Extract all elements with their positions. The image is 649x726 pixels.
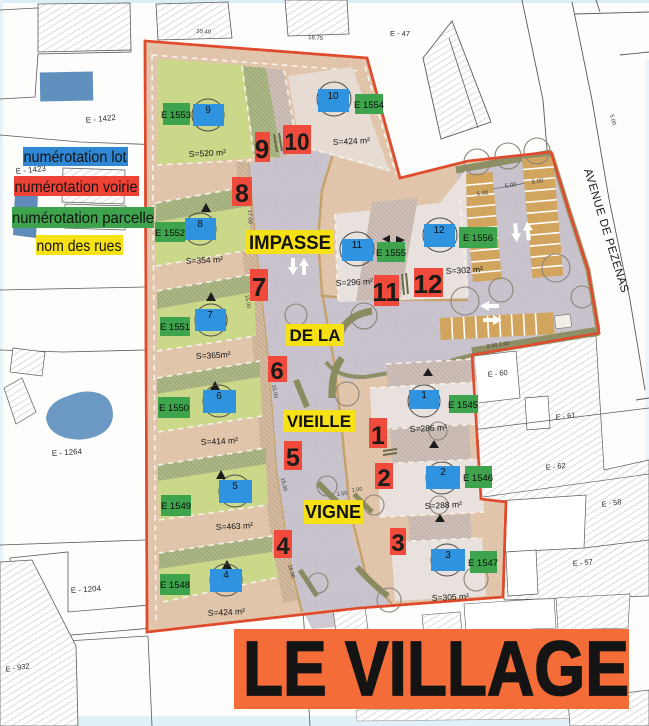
svg-text:5: 5 (286, 444, 300, 472)
svg-text:numérotation voirie: numérotation voirie (15, 179, 138, 196)
svg-text:4: 4 (276, 533, 290, 560)
svg-text:4: 4 (223, 570, 229, 581)
svg-text:18.75: 18.75 (308, 35, 324, 42)
svg-text:DE LA: DE LA (290, 326, 341, 345)
svg-text:3: 3 (391, 530, 404, 557)
svg-text:S=414 m²: S=414 m² (201, 435, 239, 447)
svg-text:S=286 m²: S=286 m² (410, 422, 448, 434)
svg-text:numérotation parcelle: numérotation parcelle (12, 210, 154, 227)
svg-text:S=424 m²: S=424 m² (208, 606, 246, 618)
svg-text:E 1549: E 1549 (161, 501, 191, 512)
svg-text:nom des rues: nom des rues (37, 238, 122, 255)
svg-text:11: 11 (352, 240, 363, 251)
svg-text:17.00: 17.00 (246, 210, 253, 224)
svg-text:2: 2 (440, 467, 446, 478)
svg-text:S=520 m²: S=520 m² (189, 147, 227, 159)
svg-text:6: 6 (216, 391, 222, 402)
svg-text:S=354 m²: S=354 m² (186, 254, 224, 266)
svg-text:8: 8 (235, 180, 249, 208)
svg-text:E 1554: E 1554 (354, 100, 384, 111)
svg-text:S=302 m²: S=302 m² (446, 264, 484, 276)
svg-text:IMPASSE: IMPASSE (249, 233, 331, 254)
svg-text:E 1547: E 1547 (468, 558, 498, 569)
svg-text:S=288 m²: S=288 m² (425, 499, 463, 511)
svg-text:E 1548: E 1548 (160, 580, 190, 591)
svg-text:10: 10 (285, 129, 310, 156)
svg-text:E 1545: E 1545 (448, 400, 478, 411)
svg-text:numérotation lot: numérotation lot (24, 149, 127, 166)
svg-text:12: 12 (414, 269, 443, 299)
svg-text:7: 7 (207, 310, 213, 321)
svg-text:E 1553: E 1553 (161, 110, 191, 121)
svg-text:E - 47: E - 47 (390, 29, 410, 38)
svg-text:S=463 m²: S=463 m² (216, 520, 254, 532)
svg-text:1: 1 (371, 422, 385, 450)
svg-text:5: 5 (232, 481, 238, 492)
svg-text:E - 57: E - 57 (572, 557, 593, 568)
svg-text:3: 3 (445, 550, 451, 561)
svg-text:S=305 m²: S=305 m² (432, 591, 470, 603)
svg-text:E 1551: E 1551 (160, 322, 190, 333)
svg-text:S=296 m²: S=296 m² (336, 276, 374, 288)
svg-text:1: 1 (421, 390, 427, 401)
svg-text:E 1546: E 1546 (463, 473, 493, 484)
svg-text:9: 9 (205, 105, 211, 116)
svg-text:8: 8 (197, 219, 203, 230)
svg-text:9: 9 (255, 134, 269, 164)
svg-text:S=365m²: S=365m² (196, 349, 231, 361)
svg-text:2: 2 (377, 465, 390, 492)
svg-text:E 1555: E 1555 (376, 248, 406, 259)
svg-text:7: 7 (252, 272, 266, 302)
svg-text:E 1556: E 1556 (463, 233, 493, 244)
svg-text:10: 10 (327, 91, 339, 102)
svg-text:12: 12 (433, 225, 445, 236)
svg-text:LE VILLAGE: LE VILLAGE (243, 626, 629, 712)
svg-text:E 1552: E 1552 (155, 228, 185, 239)
svg-text:S=424 m²: S=424 m² (333, 135, 371, 147)
svg-text:11: 11 (372, 277, 400, 307)
svg-text:VIGNE: VIGNE (305, 502, 361, 522)
svg-text:VIEILLE: VIEILLE (287, 412, 351, 431)
svg-text:20.40: 20.40 (196, 29, 212, 36)
svg-text:6: 6 (270, 358, 283, 385)
svg-text:E 1550: E 1550 (159, 403, 189, 414)
